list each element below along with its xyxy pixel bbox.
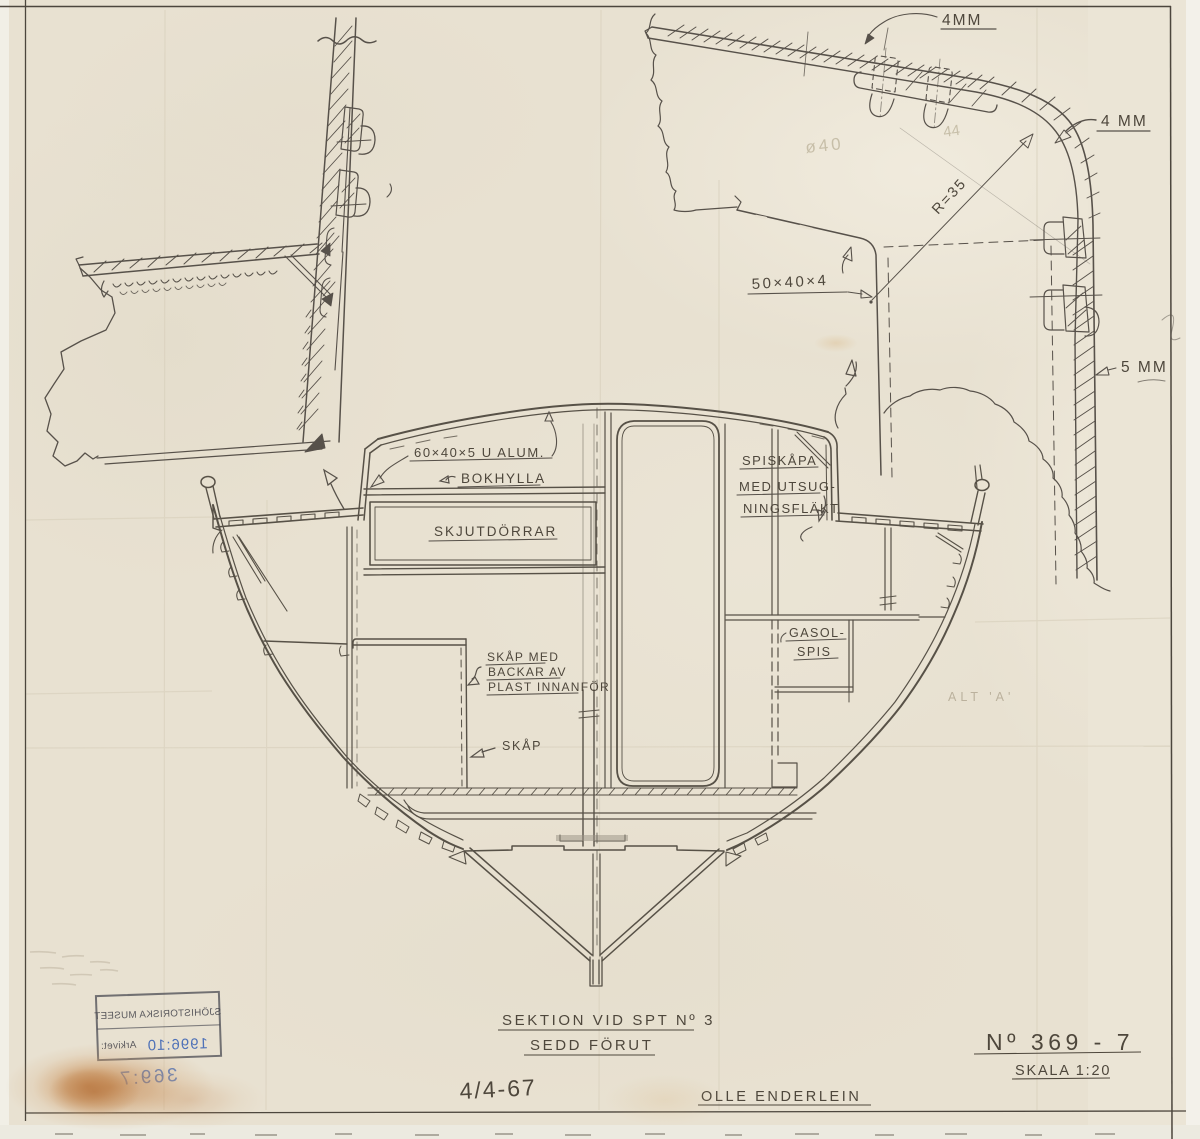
svg-text:SKALA 1:20: SKALA 1:20: [1015, 1063, 1111, 1079]
svg-text:4 MM: 4 MM: [1101, 113, 1148, 130]
svg-text:GASOL-: GASOL-: [789, 626, 845, 640]
svg-text:MED UTSUG-: MED UTSUG-: [739, 479, 836, 494]
svg-text:Nº 369 - 7: Nº 369 - 7: [986, 1029, 1134, 1055]
svg-text:BACKAR AV: BACKAR AV: [488, 665, 567, 679]
svg-text:SKÅP: SKÅP: [502, 738, 542, 753]
svg-text:5 MM: 5 MM: [1121, 359, 1168, 376]
svg-text:4MM: 4MM: [942, 12, 982, 29]
svg-text:ø40: ø40: [804, 134, 844, 157]
svg-text:4/4-67: 4/4-67: [459, 1074, 537, 1104]
svg-text:PLAST INNANFÖR: PLAST INNANFÖR: [488, 680, 610, 694]
svg-text:BOKHYLLA: BOKHYLLA: [461, 471, 546, 486]
svg-text:SKJUTDÖRRAR: SKJUTDÖRRAR: [434, 524, 557, 539]
svg-text:60×40×5 U ALUM.: 60×40×5 U ALUM.: [414, 445, 545, 460]
svg-text:SKÅP MED: SKÅP MED: [487, 649, 559, 664]
svg-text:SEKTION VID SPT Nº 3: SEKTION VID SPT Nº 3: [502, 1012, 715, 1029]
svg-text:SPISKÅPA: SPISKÅPA: [742, 453, 817, 468]
svg-text:44: 44: [942, 122, 961, 141]
svg-text:SEDD FÖRUT: SEDD FÖRUT: [530, 1036, 654, 1054]
svg-text:SPIS: SPIS: [797, 645, 832, 659]
svg-text:ALT 'A': ALT 'A': [948, 690, 1014, 704]
svg-text:OLLE ENDERLEIN: OLLE ENDERLEIN: [701, 1089, 862, 1105]
